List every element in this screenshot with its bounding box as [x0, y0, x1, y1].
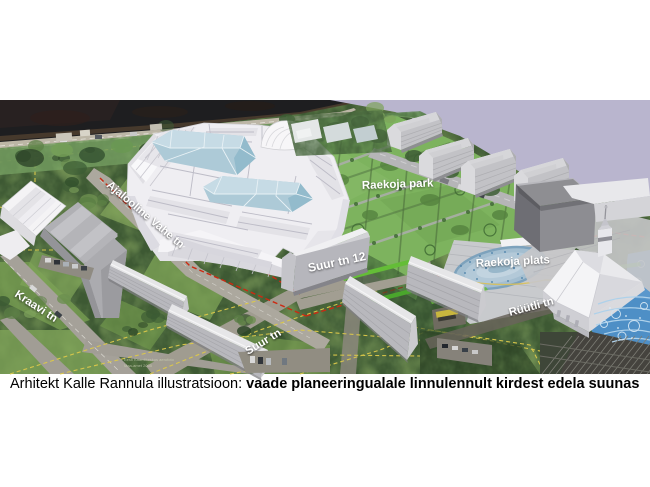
svg-text:Raekoja park: Raekoja park — [362, 177, 435, 192]
svg-text:Eesti Kaardikeskus aerofoto: Eesti Kaardikeskus aerofoto — [124, 357, 175, 362]
svg-text:Maa-amet 2005: Maa-amet 2005 — [124, 363, 153, 368]
